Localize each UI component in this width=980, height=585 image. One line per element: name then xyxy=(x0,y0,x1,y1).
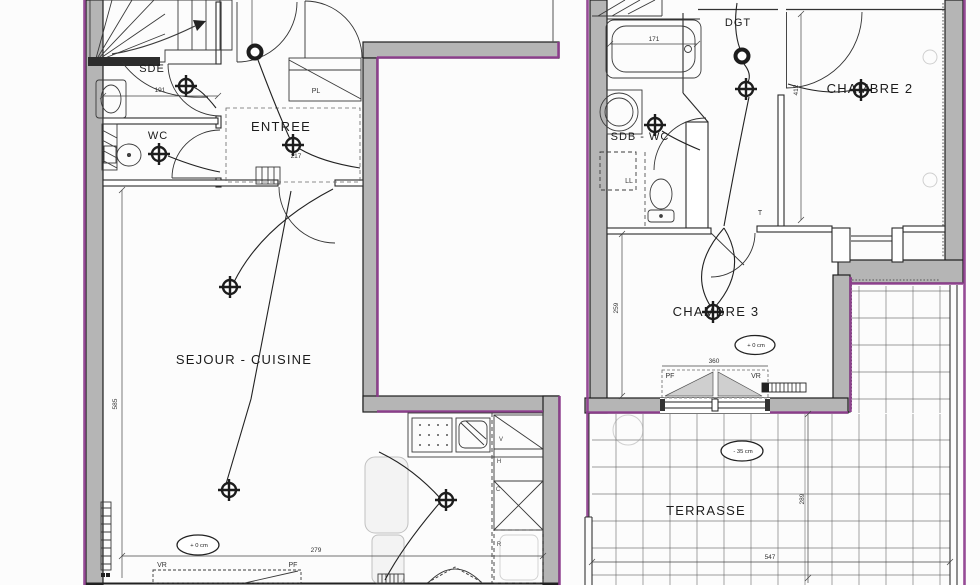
level-marker: + 0 cm xyxy=(177,535,219,555)
left-plan-lights xyxy=(148,46,457,512)
room-label-sde: SDE xyxy=(139,63,165,75)
ceiling-light-icon xyxy=(435,489,457,511)
left-plan: 191 217 279 585 + 0 cm SDE WC ENTREE SEJ… xyxy=(85,0,560,585)
dimension-360: 360 xyxy=(709,358,720,365)
right-plan-dimensions: 171 412 259 360 289 547 xyxy=(589,11,953,583)
pencil-furniture xyxy=(365,457,408,583)
dimension-279: 279 xyxy=(311,547,322,554)
dimension-289: 289 xyxy=(799,493,806,504)
right-plan: 171 412 259 360 289 547 + 0 cm - 35 cm D… xyxy=(585,0,965,585)
appliance-letter-v: V xyxy=(499,437,503,443)
light-outlet-icon xyxy=(249,46,262,59)
level-marker-label: - 35 cm xyxy=(733,449,752,455)
level-marker-terrasse: - 35 cm xyxy=(721,441,763,461)
wc-toilet xyxy=(104,144,141,166)
room-label-wc: WC xyxy=(148,130,168,142)
window-label-pf: PF xyxy=(666,373,675,380)
label-t: T xyxy=(758,210,763,217)
shutter-label-vr: VR xyxy=(751,373,761,380)
dimension-259: 259 xyxy=(613,302,620,313)
room-label-chambre3: CHAMBRE 3 xyxy=(673,304,760,319)
ceiling-light-icon xyxy=(175,75,197,97)
dimension-191: 191 xyxy=(155,87,166,94)
room-label-sejour-cuisine: SEJOUR - CUISINE xyxy=(176,352,312,367)
level-marker-label: + 0 cm xyxy=(190,543,208,549)
room-label-sdb-wc: SDB - WC xyxy=(611,131,670,143)
room-label-entree: ENTREE xyxy=(251,119,311,134)
ceiling-light-icon xyxy=(148,143,170,165)
washer-label-ll: LL xyxy=(625,178,633,185)
toilet-icon xyxy=(650,179,672,209)
dimension-217: 217 xyxy=(291,153,302,160)
shutter-label-vr: VR xyxy=(157,562,167,569)
room-label-dgt: DGT xyxy=(725,17,751,29)
window-sejour xyxy=(101,502,483,583)
ceiling-light-icon xyxy=(218,479,240,501)
appliance-letter-c: C xyxy=(496,487,501,493)
room-label-chambre2: CHAMBRE 2 xyxy=(827,81,914,96)
room-label-terrasse: TERRASSE xyxy=(666,503,746,518)
dimension-547: 547 xyxy=(765,554,776,561)
appliance-letter-h: H xyxy=(497,459,501,465)
dimension-412: 412 xyxy=(793,84,800,95)
hob-icon xyxy=(419,424,448,446)
floor-plan-image: 191 217 279 585 + 0 cm SDE WC ENTREE SEJ… xyxy=(0,0,980,585)
light-outlet-icon xyxy=(736,50,749,63)
sdb-fixtures xyxy=(600,90,674,222)
window-label-pf: PF xyxy=(289,562,298,569)
ceiling-light-icon xyxy=(219,276,241,298)
closet-label-pl: PL xyxy=(312,88,321,95)
left-plan-partitions xyxy=(103,0,363,187)
kitchen-counter xyxy=(408,413,543,583)
ceiling-light-icon xyxy=(735,78,757,100)
bathtub-icon xyxy=(606,19,701,78)
level-marker-label: + 0 cm xyxy=(747,343,765,349)
dimension-171: 171 xyxy=(649,36,660,43)
terrace-tiles xyxy=(585,285,957,585)
appliance-letter-r: R xyxy=(497,542,502,548)
dimension-585: 585 xyxy=(112,398,119,409)
left-plan-dimensions: 191 217 279 585 xyxy=(100,87,546,578)
level-marker-chambre3: + 0 cm xyxy=(735,336,775,355)
staircase xyxy=(88,0,232,66)
closet-pl xyxy=(289,58,361,101)
right-plan-walls xyxy=(585,0,963,413)
